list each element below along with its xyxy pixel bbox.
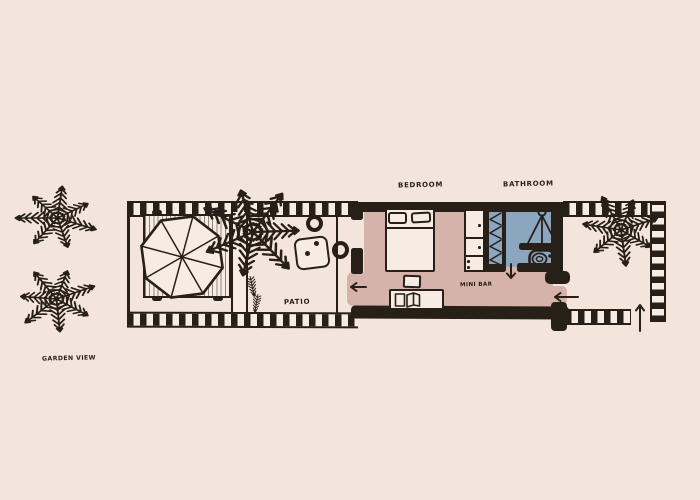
palm-tree-icon (9, 259, 104, 339)
label-garden-view: GARDEN VIEW (42, 354, 96, 362)
minibar-book-icon (394, 291, 422, 308)
bathroom-door-arrow (503, 262, 519, 284)
room-label-patio: PATIO (284, 298, 310, 307)
toilet-icon (528, 249, 556, 270)
wardrobe-handle (467, 260, 470, 263)
louver-door-line (504, 212, 506, 265)
garden-entrance-arrow (632, 301, 648, 333)
wardrobe-handle (478, 224, 481, 227)
louver-shelf (487, 210, 504, 267)
desk-chair (403, 275, 421, 289)
palm-tree-icon (574, 188, 668, 272)
wardrobe-handle (478, 246, 481, 249)
wardrobe-shelf-line (466, 255, 483, 257)
wall-left-upper (351, 202, 363, 220)
wall-bottom (351, 306, 569, 320)
label-mini-bar: MINI BAR (460, 282, 493, 289)
wall-left-lower (351, 248, 363, 274)
bed-pillow (411, 211, 432, 223)
room-label-bathroom: BATHROOM (503, 179, 554, 188)
palm-vine-icon (238, 272, 278, 320)
patio-right-wall (336, 211, 338, 313)
side-entrance-arrow (552, 291, 580, 303)
patio-exit-arrow (348, 281, 368, 293)
wall-right-bottom-stub (551, 302, 567, 331)
wardrobe-handle (467, 266, 470, 269)
patio-left-wall (127, 205, 130, 321)
bed-pillow (388, 212, 407, 224)
wall-right-endcap (545, 271, 570, 284)
wardrobe-shelf-line (466, 237, 483, 239)
patio-stool (331, 240, 351, 261)
corridor-bottom-border (565, 309, 631, 325)
bed-blanket-line (386, 227, 434, 229)
floor-plan-illustration: BEDROOM BATHROOM PATIO MINI BAR GARDEN V… (0, 0, 700, 500)
shower-icon (521, 203, 563, 249)
palm-tree-icon (10, 179, 105, 257)
room-label-bedroom: BEDROOM (398, 181, 443, 190)
